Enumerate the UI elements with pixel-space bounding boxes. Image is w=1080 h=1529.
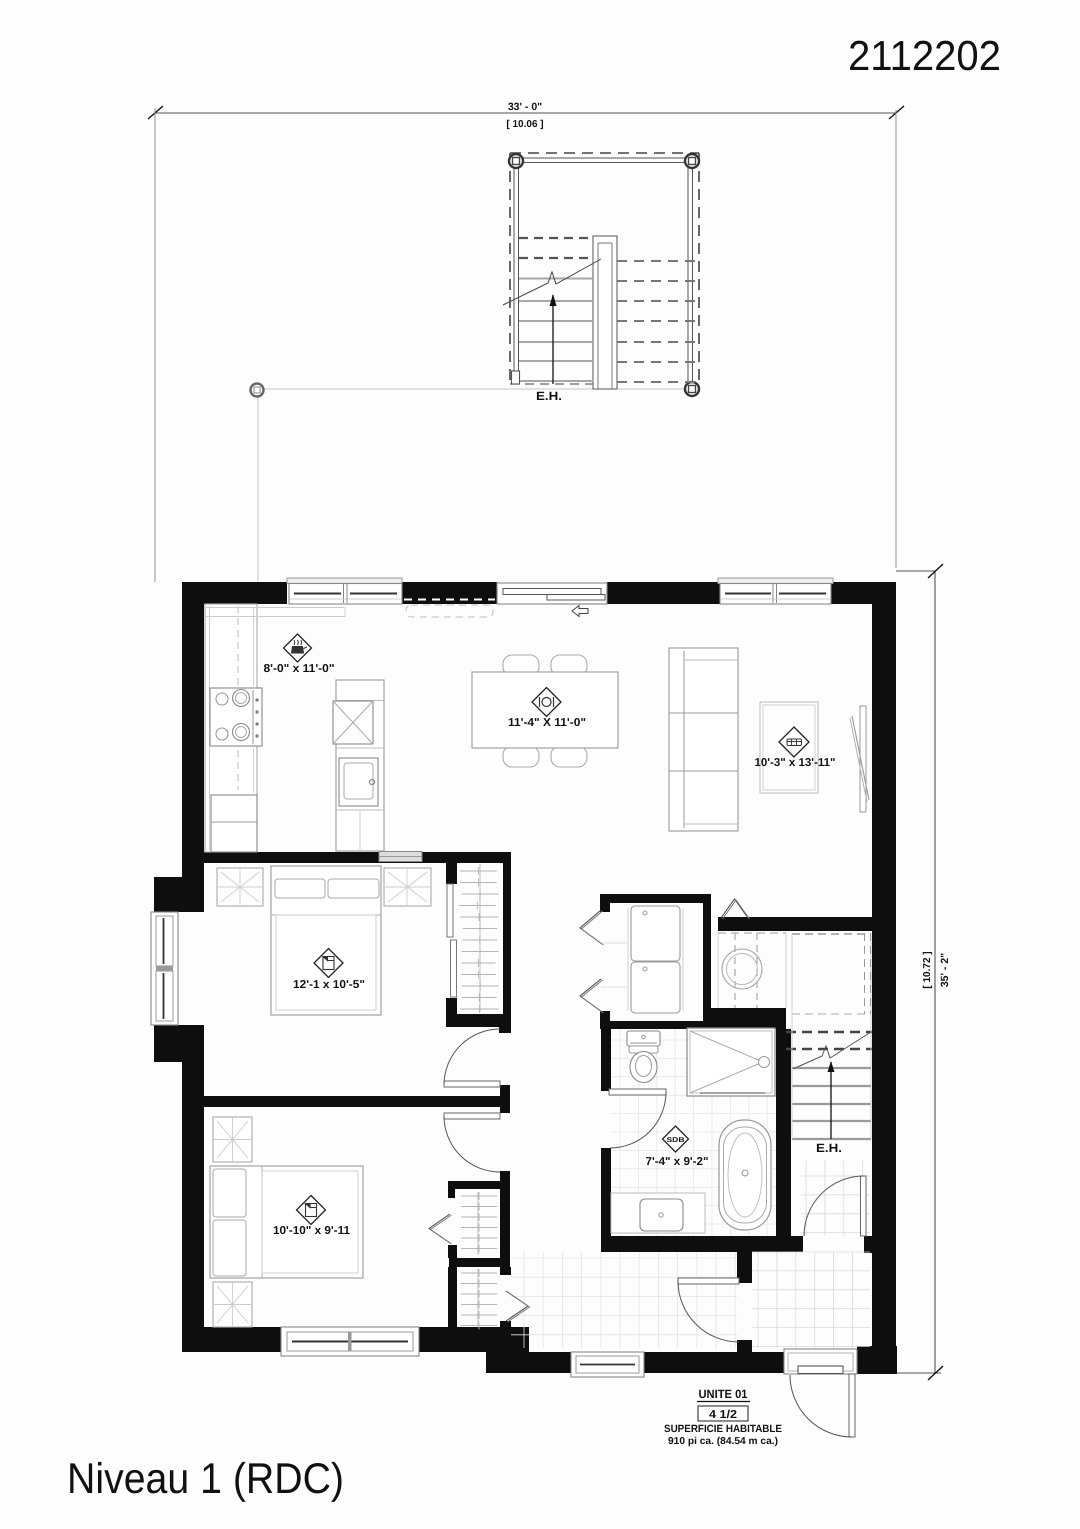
svg-text:[ 10.72 ]: [ 10.72 ] [922, 951, 933, 988]
svg-text:33' - 0": 33' - 0" [508, 101, 542, 113]
svg-text:4 1/2: 4 1/2 [709, 1409, 737, 1421]
svg-text:SDB: SDB [667, 1137, 685, 1144]
svg-text:12'-1 x 10'-5": 12'-1 x 10'-5" [293, 979, 365, 991]
svg-text:E.H.: E.H. [816, 1141, 842, 1155]
svg-text:910 pi ca. (84.54 m ca.): 910 pi ca. (84.54 m ca.) [668, 1436, 778, 1447]
svg-text:8'-0" x 11'-0": 8'-0" x 11'-0" [264, 663, 335, 675]
svg-text:UNITE 01: UNITE 01 [699, 1387, 748, 1401]
svg-text:Niveau 1 (RDC): Niveau 1 (RDC) [67, 1455, 344, 1503]
svg-text:E.H.: E.H. [536, 389, 562, 403]
svg-text:10'-3" x 13'-11": 10'-3" x 13'-11" [755, 757, 836, 769]
svg-text:SUPERFICIE HABITABLE: SUPERFICIE HABITABLE [664, 1423, 782, 1435]
svg-text:35' - 2": 35' - 2" [939, 953, 951, 987]
svg-text:2112202: 2112202 [848, 32, 1001, 79]
svg-text:10'-10" x 9'-11: 10'-10" x 9'-11 [273, 1225, 351, 1237]
svg-text:[ 10.06 ]: [ 10.06 ] [506, 119, 543, 130]
svg-text:11'-4" X 11'-0": 11'-4" X 11'-0" [508, 717, 586, 729]
svg-text:7'-4" x 9'-2": 7'-4" x 9'-2" [646, 1156, 709, 1168]
